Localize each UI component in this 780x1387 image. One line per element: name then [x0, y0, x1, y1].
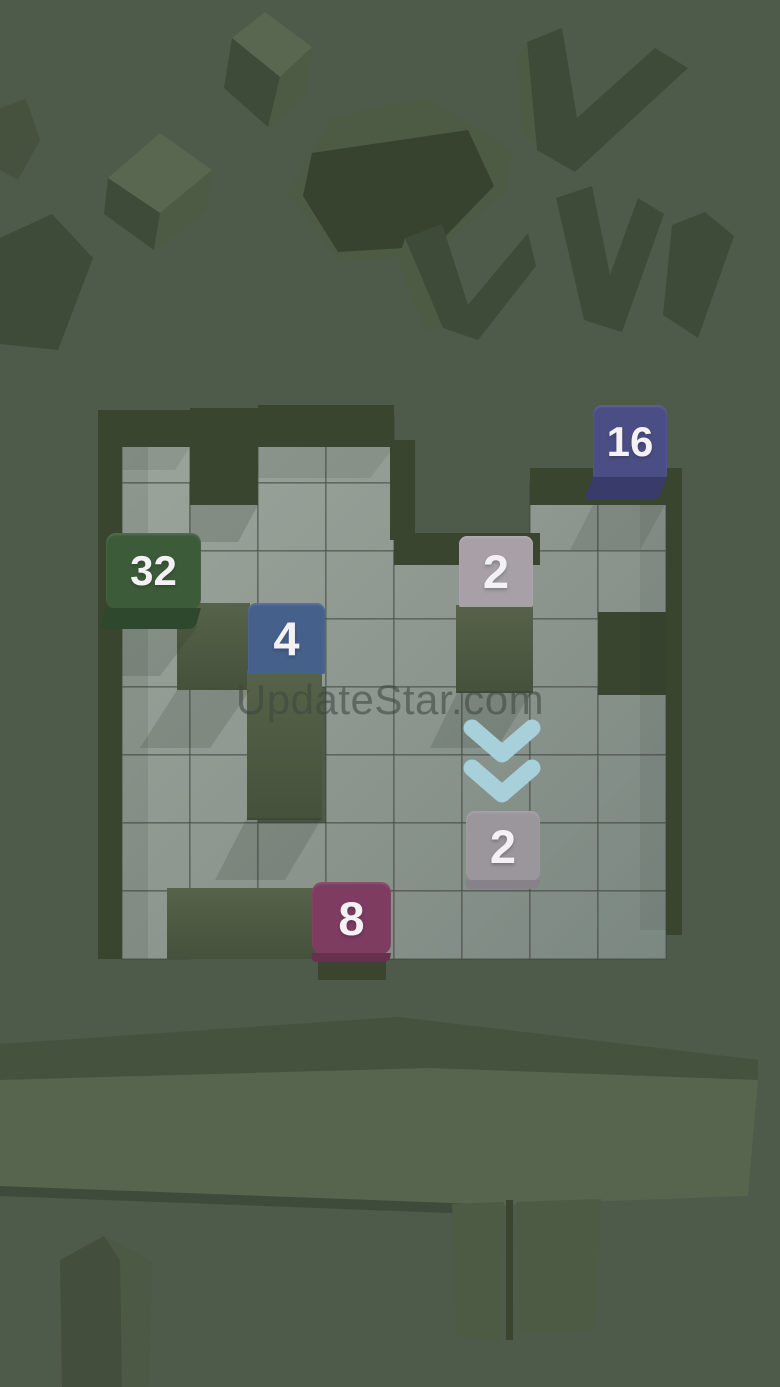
board-wall	[530, 468, 682, 505]
board-cell	[326, 891, 394, 959]
board-cell	[530, 755, 598, 823]
board-cell	[530, 891, 598, 959]
board-cell	[462, 823, 530, 891]
board-wall	[390, 440, 415, 540]
board-wall	[394, 533, 540, 565]
board-wall	[318, 958, 386, 980]
board-cell	[462, 891, 530, 959]
board-wall	[190, 408, 258, 505]
board-cell	[394, 823, 462, 891]
board-cell	[258, 483, 326, 551]
board-cell	[326, 823, 394, 891]
board-wall	[258, 405, 394, 447]
board-cell	[530, 823, 598, 891]
board-cell	[326, 483, 394, 551]
board-raised-block	[167, 888, 322, 959]
board-cell	[394, 891, 462, 959]
board-cell	[326, 755, 394, 823]
board-cell	[530, 551, 598, 619]
board-wall	[98, 410, 190, 447]
watermark-text: UpdateStar.com	[0, 676, 780, 724]
board-cell	[394, 755, 462, 823]
board-cell	[326, 551, 394, 619]
board-cell	[258, 551, 326, 619]
